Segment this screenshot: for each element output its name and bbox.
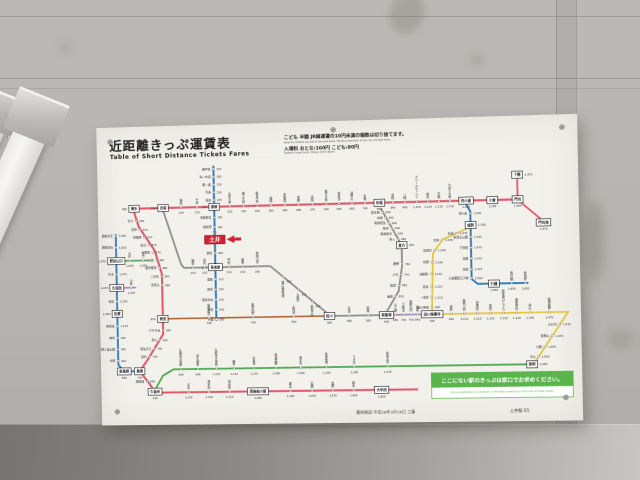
station-name: 篠栗 (241, 256, 245, 264)
station-tick (117, 349, 119, 351)
station-name: 大町 (128, 251, 132, 259)
station-tick (256, 205, 258, 207)
station-tick (434, 249, 436, 251)
station-tick (161, 284, 163, 286)
station-tick (449, 200, 451, 202)
station-fare: 230 (151, 206, 156, 210)
station-tick (348, 315, 350, 317)
station-fare: 370 (216, 167, 221, 171)
station-fare: 940 (430, 319, 436, 323)
station-fare: 1,290 (478, 223, 486, 227)
station-name: 筑後草野 (274, 352, 278, 366)
rail-line-haruda (163, 316, 330, 319)
station-fare: 260 (255, 270, 260, 274)
station-fare: 280 (286, 280, 291, 284)
station-name: 夜明 (528, 361, 537, 366)
station-fare: 740 (401, 318, 407, 322)
station-name: 筑前山家 (207, 302, 211, 316)
station-name: 筑前庄内 (409, 298, 413, 312)
station-name: 博多 (131, 206, 138, 211)
station-name: 一本松 (420, 296, 429, 300)
station-name: 天道 (347, 306, 351, 313)
station-name: 二日市 (150, 275, 159, 279)
station-tick (139, 229, 141, 231)
station-tick (115, 247, 117, 249)
station-fare: 1,110 (462, 205, 470, 209)
station-tick (153, 348, 155, 350)
station-fare: 560 (327, 320, 333, 324)
station-name: 城野 (467, 222, 475, 227)
station-name: 久保田 (111, 285, 123, 290)
station-name: 海ノ中道 (199, 175, 211, 179)
station-name: 竹下 (128, 219, 134, 223)
station-fare: 740 (137, 376, 142, 380)
station-fare: 740 (405, 262, 411, 266)
station-fare: 1,650 (540, 362, 548, 366)
station-tick (214, 226, 216, 228)
station-name: 千早 (195, 197, 199, 205)
station-fare: 1,470 (384, 370, 392, 374)
station-fare: 1,110 (435, 295, 443, 299)
station-fare: 560 (165, 283, 170, 287)
station-fare: 1,470 (525, 172, 533, 176)
station-name: 箱崎 (179, 197, 183, 205)
station-fare: 1,650 (378, 394, 386, 398)
station-name: 香椎 (210, 204, 218, 209)
station-fare: 740 (409, 318, 415, 322)
station-fare: 1,650 (140, 264, 148, 268)
station-tick (215, 299, 217, 301)
station-fare: 260 (122, 207, 127, 211)
station-tick (159, 339, 161, 341)
station-tick (213, 184, 215, 186)
station-tick (117, 337, 119, 339)
station-name: 吉野ヶ里公園 (98, 347, 115, 351)
station-tick (311, 390, 313, 392)
station-tick (298, 204, 300, 206)
station-tick (228, 266, 230, 268)
wall-stain (470, 55, 484, 65)
station-fare: 1,650 (126, 264, 134, 268)
station-name: 柚須 (191, 258, 195, 266)
station-tick (233, 368, 235, 370)
station-name: 新田原 (523, 270, 527, 281)
station-tick (524, 282, 526, 284)
station-name: 酒殿 (207, 277, 213, 281)
station-name: 原町 (202, 257, 206, 265)
station-fare: 210 (202, 205, 207, 209)
fare-map-board: 博多260吉塚230箱崎230千早210香椎210九産大前210福工大前230新… (96, 114, 583, 426)
station-fare: 1,290 (514, 204, 522, 208)
station-tick (252, 316, 254, 318)
station-fare: 160 (218, 251, 223, 255)
station-fare: 1,650 (350, 393, 358, 397)
station-fare: 1,550 (475, 276, 483, 280)
station-tick (441, 239, 443, 241)
station-name: 今山 (530, 355, 536, 359)
station-name: 大行司 (548, 322, 557, 326)
station-fare: 280 (216, 175, 221, 179)
station-fare: 1,110 (434, 272, 442, 276)
station-fare: 740 (404, 272, 410, 276)
station-fare: 1,650 (542, 355, 550, 359)
station-name: 宝珠山 (540, 334, 549, 338)
station-name: 肥前白石 (102, 246, 113, 250)
station-tick (143, 236, 145, 238)
station-tick (417, 314, 419, 316)
station-name: 筑前植木 (380, 232, 392, 236)
station-tick (196, 206, 198, 208)
station-tick (353, 366, 355, 368)
station-tick (516, 312, 518, 314)
station-tick (282, 276, 284, 278)
station-tick (297, 289, 299, 291)
station-fare: 1,110 (205, 395, 213, 399)
station-tick (115, 235, 117, 237)
station-fare: 650 (151, 317, 156, 321)
station-name: 原田 (160, 316, 167, 321)
station-name: 西添田 (475, 301, 479, 311)
station-fare: 160 (217, 225, 222, 229)
station-fare: 370 (301, 292, 306, 296)
station-tick (216, 368, 218, 370)
station-name: 新飯塚 (381, 312, 392, 317)
station-fare: 210 (202, 271, 207, 275)
station-fare: 840 (150, 380, 155, 384)
station-tick (332, 390, 334, 392)
station-tick (159, 267, 161, 269)
station-name: 歓遊舎ひこさん (501, 288, 506, 310)
station-tick (116, 301, 118, 303)
station-name: 渡瀬 (310, 380, 314, 388)
station-name: 飯塚 (366, 305, 370, 313)
station-name: 安部山公園 (453, 235, 468, 239)
station-name: 豊前桝田 (514, 296, 518, 310)
station-tick (398, 285, 400, 287)
station-fare: 560 (347, 319, 353, 323)
wall-seam (0, 16, 640, 18)
station-fare: 1,470 (546, 315, 554, 319)
station-tick (511, 282, 513, 284)
station-tick (130, 287, 132, 289)
station-name: 鯰田 (390, 283, 396, 287)
station-tick (215, 309, 217, 311)
station-fare: 1,110 (213, 372, 221, 376)
station-tick (129, 260, 131, 262)
station-tick (353, 389, 355, 391)
station-fare: 940 (121, 347, 126, 351)
station-fare: 1,290 (323, 370, 331, 374)
fare-map-sign: 博多260吉塚230箱崎230千早210香椎210九産大前210福工大前230新… (96, 114, 583, 426)
station-name: 鳥栖 (136, 368, 143, 373)
station-name: 笹原 (131, 228, 137, 232)
station-fare: 1,650 (548, 345, 556, 349)
station-fare: 1,110 (460, 317, 468, 321)
station-name: 新入 (389, 237, 395, 241)
station-name: 銀水 (352, 380, 356, 388)
station-name: 石原町 (423, 248, 432, 252)
station-tick (142, 260, 144, 262)
station-name: 小竹 (392, 273, 398, 277)
station-tick (364, 202, 366, 204)
station-fare: 1,290 (438, 248, 446, 252)
station-fare: 940 (392, 221, 398, 225)
wall-stain (608, 330, 634, 348)
station-name: 下鴨生 (401, 302, 405, 311)
footer-station-id: 土井駅 01 (510, 407, 530, 413)
station-fare: 210 (191, 271, 196, 275)
station-name: 筑前山手 (255, 250, 259, 264)
station-fare: 1,470 (474, 267, 482, 271)
station-tick (392, 202, 394, 204)
station-tick (213, 217, 215, 219)
station-name: 田川伊田 (417, 305, 429, 309)
current-station-arrow-icon (226, 235, 241, 243)
station-name: 小波瀬西工大前 (448, 276, 469, 280)
station-fare: 1,470 (563, 322, 571, 326)
station-fare: 1,470 (474, 245, 482, 249)
station-tick (257, 265, 259, 267)
station-fare: 940 (395, 226, 401, 230)
station-tick (197, 368, 199, 370)
station-name: 福間 (269, 195, 273, 203)
station-name: 大鶴 (536, 345, 542, 349)
station-fare: 210 (219, 287, 224, 291)
wall-seam (0, 78, 640, 80)
station-fare: 1,470 (474, 256, 482, 260)
station-name: 御井 (232, 358, 236, 366)
station-tick (382, 212, 384, 214)
station-tick (503, 312, 505, 314)
station-fare: 1,110 (230, 372, 238, 376)
station-tick (180, 207, 182, 209)
station-name: 筑前大分 (310, 305, 314, 317)
station-name: 牛津 (108, 273, 114, 277)
station-fare: 370 (143, 228, 148, 232)
station-name: 肥前山口 (110, 258, 123, 263)
station-name: 小倉 (488, 197, 497, 202)
station-name: 筑前垣生 (374, 221, 386, 225)
station-tick (476, 312, 478, 314)
station-name: 浦田 (387, 294, 393, 298)
station-name: 志井 (433, 238, 439, 242)
station-tick (162, 330, 164, 332)
station-name: 南福岡 (133, 235, 142, 239)
station-name: 久留米高校前 (178, 348, 182, 367)
station-fare: 230 (240, 270, 245, 274)
station-fare: 210 (195, 210, 200, 214)
station-fare: 1,650 (522, 286, 530, 290)
station-fare: 280 (282, 208, 287, 212)
station-name: 吉野 (331, 380, 335, 388)
station-name: 善導寺 (252, 355, 256, 366)
station-fare: 1,290 (103, 312, 111, 316)
wall-seam (0, 88, 640, 90)
station-name: 弥生が丘 (140, 347, 151, 351)
wall-stain (585, 200, 605, 282)
station-name: 苅田 (463, 267, 469, 271)
station-tick (431, 306, 433, 308)
station-name: 水城 (148, 258, 154, 262)
station-tick (135, 220, 137, 222)
station-fare: 1,110 (446, 204, 454, 208)
station-tick (367, 314, 369, 316)
station-name: 東水巻 (371, 210, 380, 214)
station-fare: 740 (157, 347, 162, 351)
station-fare: 1,110 (435, 285, 443, 289)
station-fare: 650 (393, 318, 399, 322)
station-fare: 1,290 (120, 299, 128, 303)
station-fare: 370 (315, 304, 320, 308)
station-tick (385, 217, 387, 219)
station-fare: 1,470 (540, 227, 548, 231)
station-tick (152, 252, 154, 254)
station-tick (146, 381, 148, 383)
station-fare: 650 (399, 294, 405, 298)
station-tick (192, 267, 194, 269)
station-fare: 1,290 (254, 396, 262, 400)
station-name: 久留米 (149, 389, 161, 394)
station-tick (326, 366, 328, 368)
station-fare: 940 (402, 205, 408, 209)
wall-stain (60, 42, 70, 52)
station-name: 門松 (227, 258, 231, 265)
station-fare: 560 (337, 207, 343, 211)
station-fare: 940 (385, 210, 391, 214)
station-fare: 1,470 (98, 259, 106, 263)
station-fare: 1,110 (185, 395, 193, 399)
station-tick (229, 391, 231, 393)
rail-line-sasaguri (163, 207, 329, 318)
station-name: 筑前内野 (251, 301, 255, 315)
footer-date: 最終確認:平成28年3月18日 工藤 (356, 409, 415, 415)
station-tick (243, 205, 245, 207)
station-tick (548, 311, 550, 313)
station-name: 瀬高 (288, 381, 292, 389)
station-name: 香椎神宮 (200, 215, 212, 219)
station-tick (290, 390, 292, 392)
station-name: 採銅所 (420, 272, 429, 276)
station-tick (490, 312, 492, 314)
station-name: 石田 (448, 231, 454, 235)
station-tick (471, 277, 473, 279)
station-name: 赤間 (310, 194, 314, 202)
station-fare: 1,290 (473, 211, 481, 215)
station-name: 東福間 (282, 192, 286, 203)
station-fare: 940 (121, 336, 126, 340)
station-fare: 740 (251, 321, 256, 325)
station-tick (395, 295, 397, 297)
station-tick (214, 252, 216, 254)
station-name: 奈多 (205, 190, 211, 194)
station-tick (456, 232, 458, 234)
station-fare: 1,110 (435, 205, 443, 209)
station-fare: 460 (162, 266, 167, 270)
station-name: 枝光 (426, 191, 430, 199)
station-fare: 1,650 (119, 234, 127, 238)
station-name: 田川後藤寺 (424, 311, 442, 316)
station-name: 下曽根 (459, 246, 468, 250)
station-fare: 460 (159, 258, 164, 262)
station-tick (430, 273, 432, 275)
station-fare: 460 (324, 207, 330, 211)
station-name: 筑後大石 (385, 350, 389, 364)
station-tick (431, 297, 433, 299)
station-name: 伊賀屋 (106, 324, 115, 328)
station-fare: 280 (296, 208, 301, 212)
station-tick (431, 261, 433, 263)
station-tick (463, 313, 465, 315)
station-tick (311, 301, 313, 303)
station-name: 筑後船小屋 (250, 388, 267, 393)
station-name: 池尻 (449, 304, 453, 312)
station-tick (404, 201, 406, 203)
station-fare: 1,110 (250, 371, 258, 375)
station-name: 豊前川崎 (462, 297, 466, 311)
station-fare: 1,470 (308, 394, 316, 398)
station-fare: 1,470 (128, 291, 136, 295)
station-tick (351, 203, 353, 205)
station-fare: 370 (152, 243, 157, 247)
station-tick (559, 323, 561, 325)
station-fare: 650 (166, 328, 171, 332)
station-fare: 740 (362, 206, 368, 210)
station-name: 中間 (377, 216, 383, 220)
station-tick (117, 325, 119, 327)
station-fare: 560 (164, 274, 169, 278)
rail-line-red-mojiko (521, 202, 542, 220)
station-tick (338, 203, 340, 205)
station-fare: 940 (398, 232, 404, 236)
station-name: 教育大前 (324, 188, 328, 202)
station-name: 伊賀 (206, 251, 212, 255)
station-name: 肥前竜王 (102, 234, 113, 238)
station-tick (208, 317, 210, 319)
station-fare: 740 (207, 321, 212, 325)
station-fare: 650 (402, 283, 408, 287)
station-fare: 1,550 (490, 288, 498, 292)
station-fare: 250 (255, 209, 260, 213)
station-tick (395, 314, 397, 316)
station-fare: 1,650 (119, 245, 127, 249)
station-fare: 1,110 (487, 316, 495, 320)
station-name: 門司 (514, 196, 521, 201)
station-fare: 250 (217, 182, 222, 186)
station-tick (529, 312, 531, 314)
station-fare: 1,110 (424, 205, 432, 209)
station-fare: 250 (217, 190, 222, 194)
station-name: 戸畑 (437, 192, 441, 199)
station-name: 行橋 (489, 281, 498, 286)
station-name: 黒崎 (391, 193, 395, 200)
rail-lines (114, 156, 569, 393)
station-name: 呼野 (423, 260, 429, 264)
station-name: 肥前旭 (136, 380, 145, 384)
station-fare: 1,470 (329, 394, 337, 398)
current-station-romaji: Doi (212, 230, 217, 234)
station-fare: 940 (390, 206, 396, 210)
station-fare: 940 (153, 396, 158, 400)
station-tick (215, 278, 217, 280)
station-tick (215, 289, 217, 291)
station-tick (401, 263, 403, 265)
station-name: 鞍手 (383, 226, 389, 230)
station-name: 上穂波 (292, 303, 296, 314)
station-tick (450, 313, 452, 315)
station-name: 雁ノ巣 (202, 183, 211, 187)
station-fare: 940 (195, 372, 200, 376)
station-tick (213, 191, 215, 193)
